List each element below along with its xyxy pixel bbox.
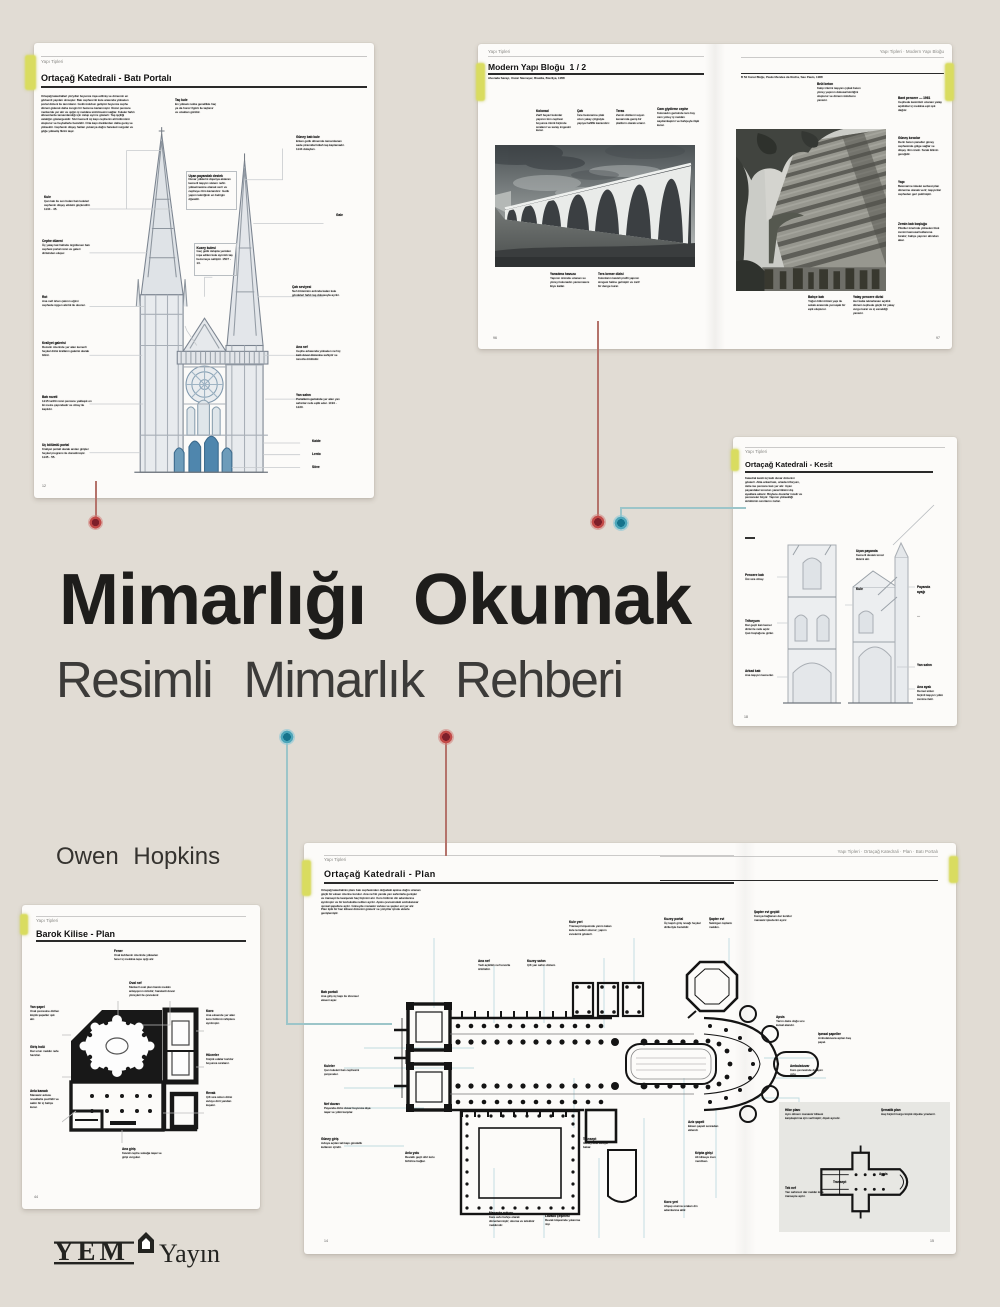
svg-text:Yayın: Yayın xyxy=(159,1239,220,1268)
svg-text:YEM: YEM xyxy=(54,1236,129,1266)
